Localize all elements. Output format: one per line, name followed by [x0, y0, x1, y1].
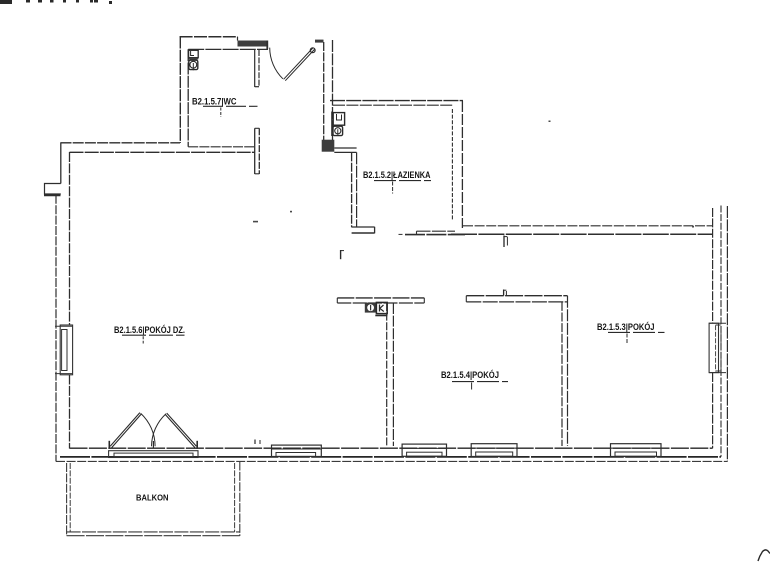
svg-text:B2.1.5.4|POKÓJ: B2.1.5.4|POKÓJ — [441, 369, 499, 381]
svg-text:B2.1.5.6|POKÓJ DZ.: B2.1.5.6|POKÓJ DZ. — [114, 324, 185, 336]
svg-text:BALKON: BALKON — [136, 493, 169, 502]
svg-text:B2.1.5.3|POKÓJ: B2.1.5.3|POKÓJ — [597, 321, 655, 333]
svg-text:B2.1.5.2|ŁAZIENKA: B2.1.5.2|ŁAZIENKA — [363, 170, 431, 181]
